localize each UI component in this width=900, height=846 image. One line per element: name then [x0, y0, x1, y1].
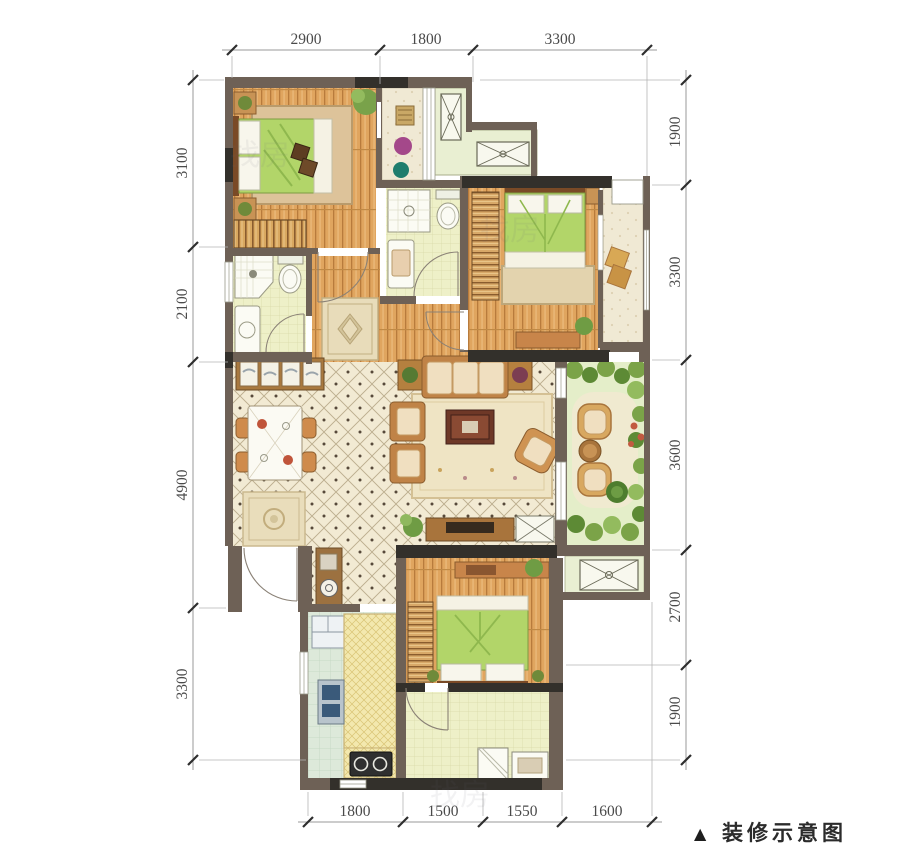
window — [556, 462, 566, 520]
dim-label-right-3: 3600 — [667, 439, 684, 470]
dim-label-bottom-3: 1550 — [507, 803, 538, 820]
placemat — [257, 419, 267, 429]
dim-label-left-2: 2100 — [174, 288, 191, 319]
bed-sheet-fold — [437, 596, 528, 610]
shower-drain-icon — [249, 270, 257, 278]
kitchen-counter — [344, 614, 396, 748]
sofa-cushion — [479, 362, 504, 394]
entry-cabinet — [316, 548, 342, 610]
bench — [516, 332, 580, 348]
armchair — [390, 402, 425, 441]
bed-sheet-fold — [314, 119, 332, 193]
basin-icon — [321, 580, 338, 597]
coffee-table — [446, 410, 494, 444]
window — [340, 780, 366, 788]
plant-icon — [402, 367, 418, 383]
window — [598, 215, 603, 270]
dining-chair — [302, 418, 316, 438]
master-dresser — [234, 220, 306, 248]
shower — [388, 190, 430, 232]
dim-label-bottom-4: 1600 — [592, 803, 623, 820]
window — [644, 230, 649, 310]
sofa — [422, 356, 508, 398]
tv-icon — [446, 522, 494, 533]
vanity-sink — [388, 240, 414, 288]
window — [556, 368, 566, 398]
window — [300, 652, 308, 694]
armchair — [390, 444, 425, 483]
window — [612, 180, 643, 204]
dim-label-right-5: 1900 — [667, 696, 684, 727]
rear-balcony-unit — [580, 560, 638, 590]
window — [225, 262, 233, 302]
caption: ▲ 装修示意图 — [694, 821, 847, 845]
dim-label-right-4: 2700 — [667, 591, 684, 622]
floor-plan-page: 2900 1800 3300 1800 1500 1550 1600 3100 … — [0, 0, 900, 846]
dim-label-top-1: 2900 — [291, 31, 322, 48]
wardrobe — [408, 602, 433, 682]
caption-text: 装修示意图 — [722, 821, 847, 845]
toilet — [278, 254, 303, 293]
plant-icon — [532, 670, 544, 682]
dresser-items — [466, 565, 496, 575]
caption-triangle-icon: ▲ — [694, 824, 707, 843]
watermark-text: 找房 — [230, 139, 290, 172]
kitchen-sink — [318, 680, 344, 724]
nightstand — [586, 188, 599, 204]
vanity-sink — [235, 306, 260, 354]
watermark-text: 找房 — [480, 214, 540, 247]
pillow — [486, 664, 524, 681]
watermark-text: 找房 — [430, 779, 490, 812]
floor-plan-image: 2900 1800 3300 1800 1500 1550 1600 3100 … — [0, 0, 900, 846]
bedside-rug — [502, 266, 594, 304]
plant-icon — [525, 559, 543, 577]
tray-icon — [462, 421, 478, 433]
plant-icon — [238, 202, 252, 216]
dim-label-left-3: 4900 — [174, 469, 191, 500]
dining-chair — [302, 452, 316, 472]
sofa-cushion — [453, 362, 478, 394]
corridor-floor — [380, 304, 468, 362]
toilet — [436, 190, 460, 229]
plant-icon — [575, 317, 593, 335]
dim-label-left-1: 3100 — [174, 147, 191, 178]
entry-door — [244, 548, 297, 601]
bed-sheet-fold — [505, 252, 585, 268]
sofa-cushion — [427, 362, 452, 394]
stove — [350, 752, 392, 776]
laundry-fixtures — [478, 748, 548, 780]
window — [423, 88, 435, 180]
plant-icon — [400, 514, 412, 526]
hall-medallion-rug — [322, 298, 378, 360]
entry-rug — [243, 492, 305, 546]
dim-label-right-1: 1900 — [667, 116, 684, 147]
flower-icon — [512, 367, 528, 383]
pillow — [441, 664, 481, 681]
dim-label-right-2: 3300 — [667, 256, 684, 287]
plant-pot-icon — [393, 162, 409, 178]
dim-label-bottom-1: 1800 — [340, 803, 371, 820]
plant-icon — [238, 96, 252, 110]
dim-label-top-2: 1800 — [411, 31, 442, 48]
laundry-basin-inner — [518, 758, 542, 773]
dim-label-left-4: 3300 — [174, 668, 191, 699]
bush-icon — [611, 486, 623, 498]
kettle-icon — [320, 554, 337, 570]
dim-label-top-3: 3300 — [545, 31, 576, 48]
plant-icon — [351, 89, 365, 103]
rattan-chair — [578, 404, 611, 439]
placemat — [283, 455, 293, 465]
plant-icon — [427, 670, 439, 682]
garden-table-top — [583, 444, 597, 458]
flower-pot-icon — [394, 137, 412, 155]
